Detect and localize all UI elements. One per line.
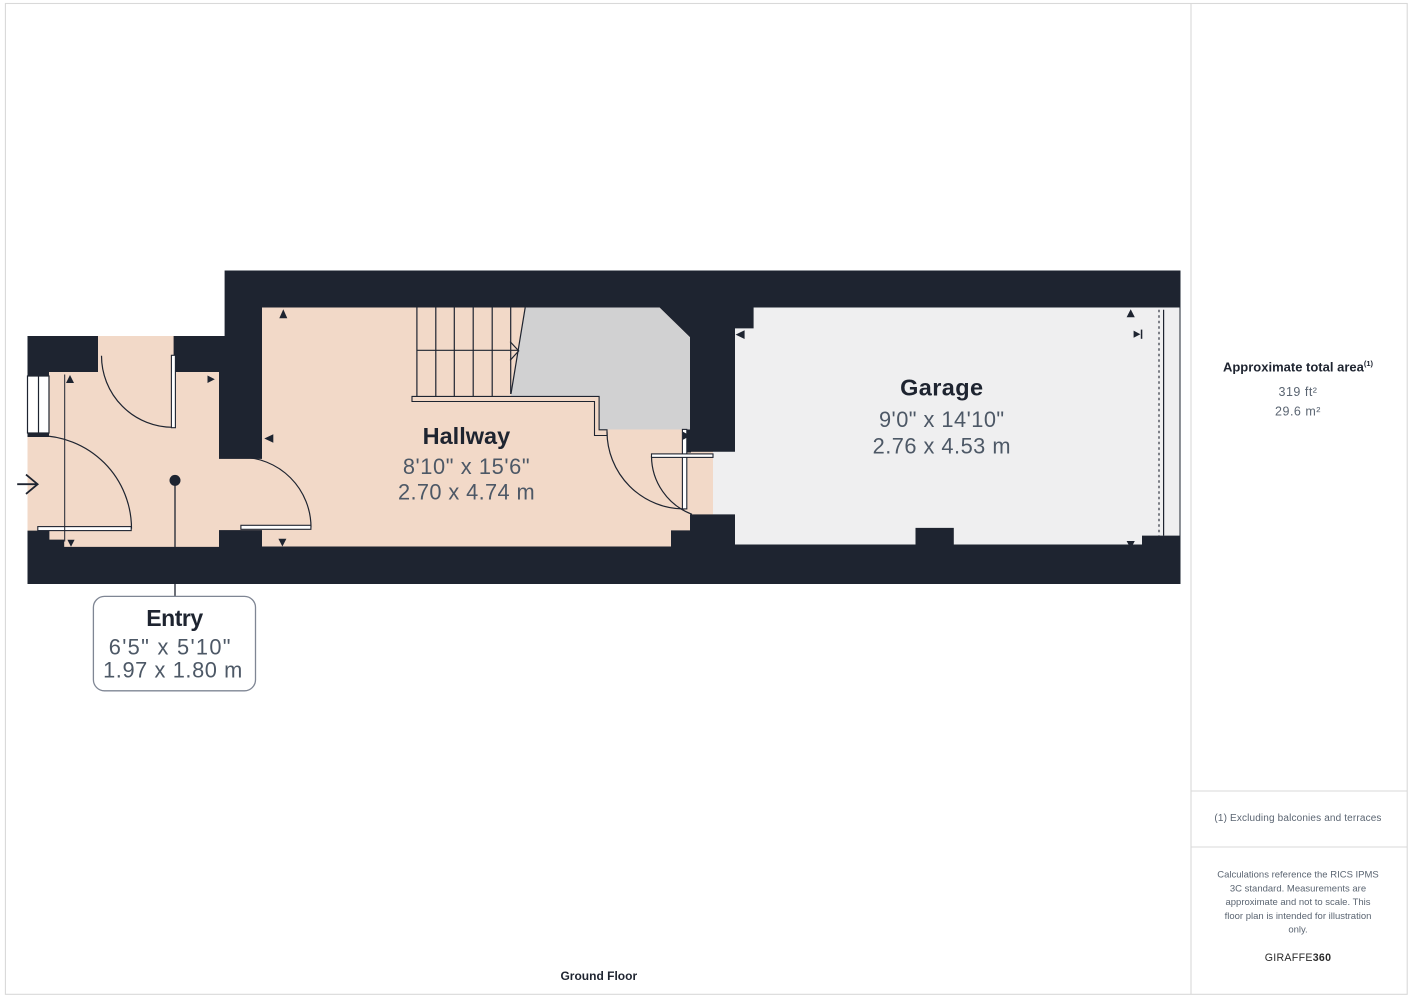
- svg-text:6'5" x 5'10": 6'5" x 5'10": [109, 634, 232, 659]
- svg-text:floor plan is intended for ill: floor plan is intended for illustration: [1225, 911, 1372, 922]
- svg-text:Approximate total area(1): Approximate total area(1): [1223, 359, 1374, 375]
- svg-text:Calculations reference the RIC: Calculations reference the RICS IPMS: [1217, 870, 1379, 881]
- svg-text:2.76 x 4.53 m: 2.76 x 4.53 m: [873, 433, 1011, 458]
- svg-text:Hallway: Hallway: [423, 423, 511, 449]
- svg-text:2.70 x 4.74 m: 2.70 x 4.74 m: [398, 480, 535, 505]
- svg-text:Entry: Entry: [146, 605, 203, 631]
- svg-text:only.: only.: [1288, 924, 1307, 935]
- svg-text:Garage: Garage: [900, 375, 983, 401]
- svg-text:9'0" x 14'10": 9'0" x 14'10": [879, 407, 1005, 432]
- svg-text:29.6 m²: 29.6 m²: [1275, 405, 1321, 419]
- svg-text:1.97 x 1.80 m: 1.97 x 1.80 m: [103, 658, 243, 683]
- svg-text:GIRAFFE360: GIRAFFE360: [1265, 952, 1332, 964]
- svg-text:approximate and not to scale.: approximate and not to scale. This: [1225, 897, 1370, 908]
- svg-text:8'10" x 15'6": 8'10" x 15'6": [403, 454, 530, 479]
- svg-text:3C standard. Measurements are: 3C standard. Measurements are: [1230, 883, 1366, 894]
- svg-text:319 ft²: 319 ft²: [1279, 385, 1318, 399]
- svg-text:Ground Floor: Ground Floor: [560, 969, 637, 983]
- svg-text:(1) Excluding balconies and te: (1) Excluding balconies and terraces: [1214, 813, 1381, 824]
